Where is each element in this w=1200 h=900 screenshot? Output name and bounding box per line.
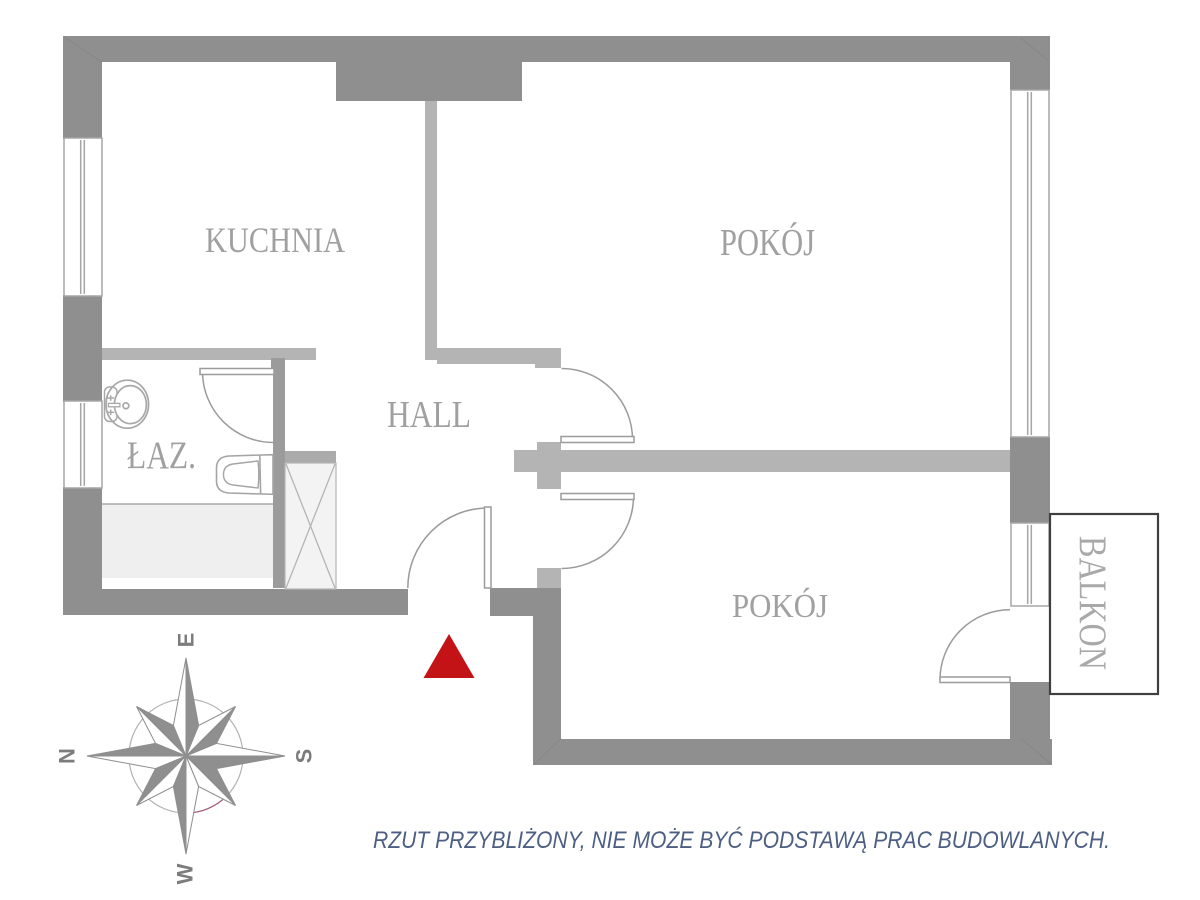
- svg-text:N: N: [55, 748, 80, 764]
- svg-text:W: W: [173, 863, 198, 884]
- svg-text:E: E: [174, 633, 199, 648]
- svg-text:RZUT PRZYBLIŻONY, NIE MOŻE BYĆ: RZUT PRZYBLIŻONY, NIE MOŻE BYĆ PODSTAWĄ …: [373, 827, 1110, 854]
- svg-text:KUCHNIA: KUCHNIA: [205, 220, 345, 260]
- svg-text:ŁAZ.: ŁAZ.: [127, 434, 196, 477]
- svg-text:POKÓJ: POKÓJ: [732, 587, 828, 625]
- svg-text:S: S: [292, 749, 317, 764]
- svg-text:POKÓJ: POKÓJ: [720, 222, 815, 264]
- svg-text:HALL: HALL: [387, 394, 471, 436]
- svg-text:BALKON: BALKON: [1071, 536, 1114, 670]
